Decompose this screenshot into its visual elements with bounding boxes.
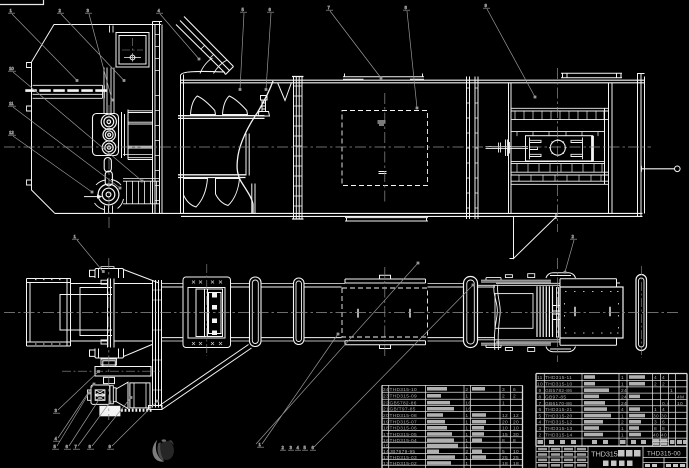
svg-text:2: 2 [465,387,468,393]
svg-text:1: 1 [465,444,468,450]
svg-text:1: 1 [621,414,624,420]
svg-text:6: 6 [662,420,665,426]
svg-text:4: 4 [539,420,542,426]
svg-text:4: 4 [621,407,624,413]
svg-text:6: 6 [539,407,542,413]
svg-text:THD315-08: THD315-08 [390,413,418,419]
svg-text:20: 20 [383,413,389,419]
svg-text:THD315-14: THD315-14 [545,432,573,438]
svg-text:12: 12 [9,130,14,135]
svg-text:18: 18 [513,461,519,467]
svg-text:22: 22 [383,401,389,407]
svg-text:3: 3 [539,426,542,432]
svg-text:20: 20 [502,420,508,426]
svg-text:THD315-11: THD315-11 [545,375,572,381]
svg-text:30: 30 [653,414,659,420]
svg-text:24: 24 [621,388,627,394]
svg-text:10: 10 [502,426,508,432]
svg-text:7: 7 [539,401,542,407]
svg-text:THD315-09: THD315-09 [390,394,418,400]
svg-text:2: 2 [539,432,542,438]
svg-text:THD315-04: THD315-04 [390,438,418,444]
svg-text:8: 8 [539,394,542,400]
svg-text:21: 21 [383,407,389,413]
svg-text:2: 2 [502,394,505,400]
svg-text:17: 17 [383,432,389,438]
svg-text:24: 24 [621,394,627,400]
svg-text:THD315-02: THD315-02 [390,461,418,467]
svg-text:25: 25 [513,455,519,461]
svg-text:1: 1 [465,413,468,419]
svg-text:10: 10 [677,401,683,407]
svg-text:13: 13 [383,455,389,461]
svg-text:4: 4 [654,375,657,381]
svg-text:18: 18 [502,461,508,467]
svg-text:0.4: 0.4 [662,401,670,407]
svg-text:30: 30 [661,414,667,420]
svg-text:2: 2 [654,382,657,388]
svg-text:2: 2 [465,449,468,455]
svg-text:GB5782-86: GB5782-86 [390,401,417,407]
svg-text:8: 8 [662,426,665,432]
svg-text:14: 14 [383,449,389,455]
svg-text:6: 6 [513,387,516,393]
svg-text:1: 1 [502,401,505,407]
svg-text:3: 3 [502,387,505,393]
svg-text:20: 20 [513,420,519,426]
svg-text:12: 12 [383,461,389,467]
svg-text:2: 2 [662,382,665,388]
svg-text:15: 15 [502,432,508,438]
svg-text:16: 16 [465,401,471,407]
svg-text:THD315-06: THD315-06 [390,426,418,432]
svg-text:THD315-05: THD315-05 [390,432,418,438]
svg-text:24: 24 [383,387,389,393]
svg-text:10: 10 [537,382,543,388]
svg-text:THD315-10: THD315-10 [390,387,418,393]
svg-text:THD315-13: THD315-13 [545,426,573,432]
svg-text:30: 30 [513,432,519,438]
svg-text:1: 1 [465,432,468,438]
svg-text:1: 1 [621,375,624,381]
svg-text:4: 4 [662,407,665,413]
svg-text:1: 1 [465,420,468,426]
svg-text:15: 15 [383,444,389,450]
svg-text:THD315-10: THD315-10 [545,382,573,388]
svg-text:1: 1 [621,432,624,438]
svg-text:19: 19 [383,420,389,426]
svg-text:4M: 4M [677,394,684,400]
svg-text:12: 12 [502,413,508,419]
svg-text:THD315-21: THD315-21 [545,407,573,413]
svg-text:8: 8 [502,438,505,444]
svg-text:10: 10 [9,66,14,71]
svg-text:2: 2 [513,394,516,400]
svg-text:THD315-07: THD315-07 [390,420,418,426]
svg-text:16: 16 [383,438,389,444]
svg-text:1: 1 [621,426,624,432]
svg-text:THD315-00: THD315-00 [647,450,681,457]
svg-text:GB5782-86: GB5782-86 [545,388,572,394]
svg-text:1: 1 [465,461,468,467]
svg-text:12: 12 [513,413,519,419]
svg-text:JB7679-95: JB7679-95 [390,449,416,455]
svg-text:11: 11 [9,101,14,106]
svg-text:GB97-85: GB97-85 [545,394,566,400]
svg-text:1: 1 [465,426,468,432]
svg-text:THD315-12: THD315-12 [545,420,573,426]
svg-text:THD315: THD315 [591,450,618,459]
svg-text:11: 11 [537,375,543,381]
svg-text:1: 1 [670,388,673,394]
svg-text:3: 3 [654,420,657,426]
svg-text:1: 1 [465,455,468,461]
svg-text:1: 1 [465,438,468,444]
svg-text:25: 25 [502,455,508,461]
svg-text:8: 8 [654,426,657,432]
svg-text:4: 4 [662,375,665,381]
svg-text:5: 5 [539,414,542,420]
svg-text:40: 40 [661,432,667,438]
svg-text:5: 5 [502,449,505,455]
svg-text:10: 10 [513,449,519,455]
svg-text:40: 40 [653,432,659,438]
svg-text:18: 18 [383,426,389,432]
svg-text:2: 2 [621,420,624,426]
svg-text:24: 24 [621,401,627,407]
svg-text:THD315-20: THD315-20 [545,414,573,420]
svg-text:GB6170-86: GB6170-86 [545,401,572,407]
svg-text:GB/T97-85: GB/T97-85 [390,407,416,413]
svg-text:8: 8 [513,438,516,444]
svg-text:1: 1 [465,394,468,400]
svg-text:9: 9 [539,388,542,394]
svg-text:1: 1 [621,382,624,388]
svg-text:23: 23 [383,394,389,400]
svg-text:1: 1 [654,407,657,413]
svg-text:10: 10 [513,426,519,432]
svg-text:16: 16 [465,407,471,413]
svg-text:THD315-03: THD315-03 [390,455,418,461]
